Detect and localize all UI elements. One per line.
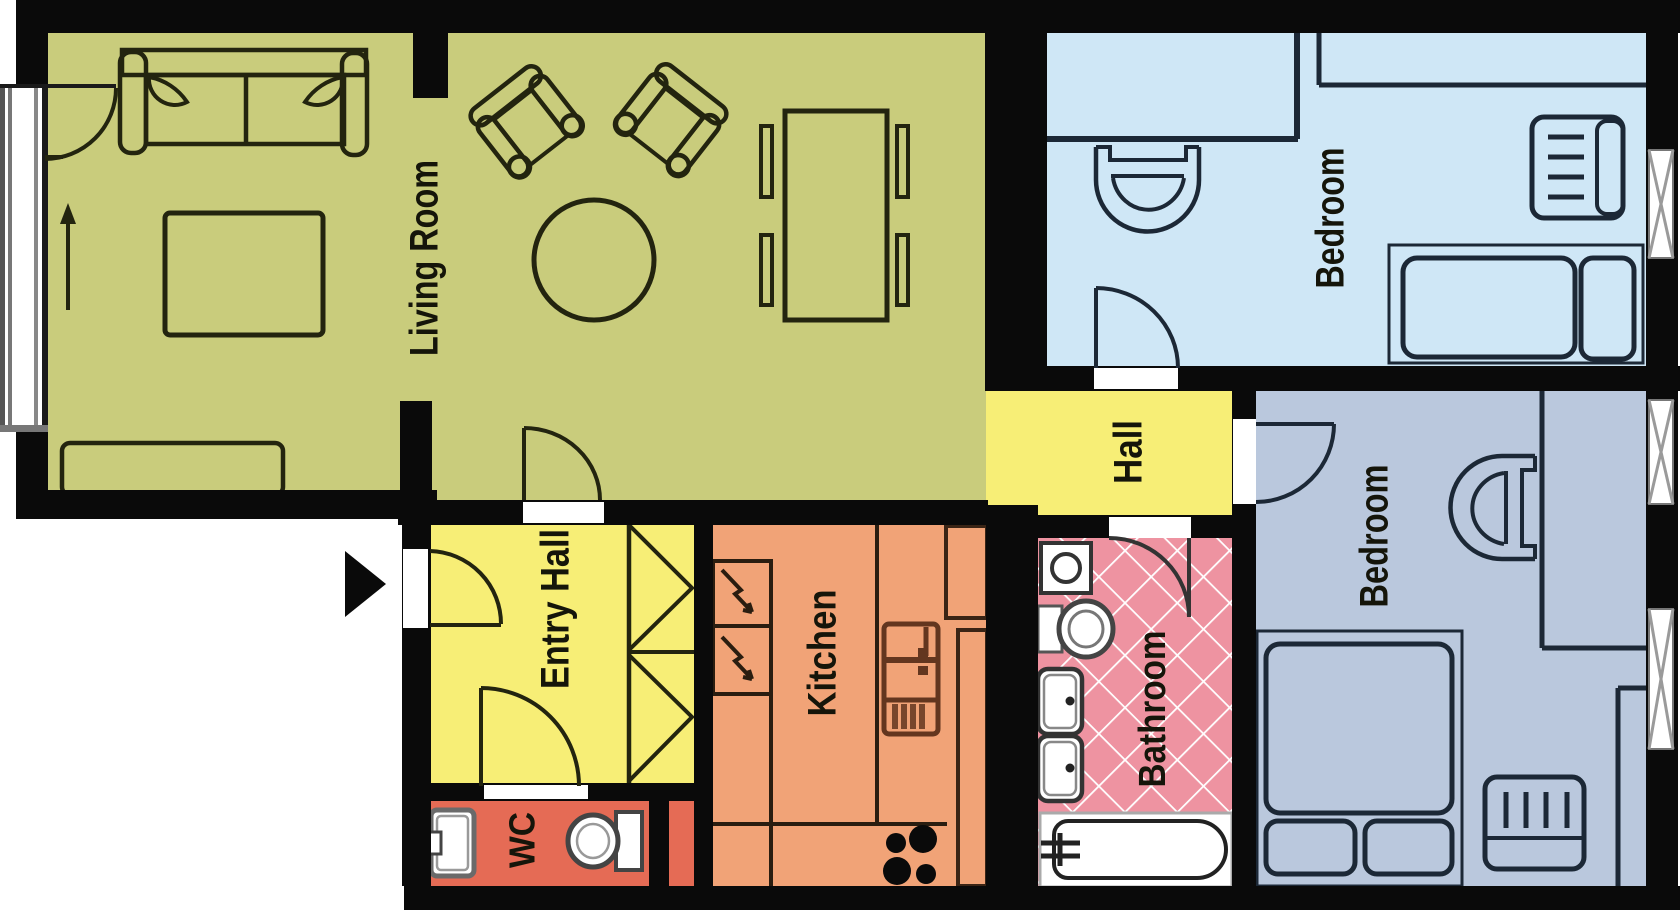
- svg-text:Living Room: Living Room: [403, 160, 447, 356]
- svg-text:Bedroom: Bedroom: [1353, 465, 1397, 608]
- svg-text:WC: WC: [502, 812, 543, 868]
- svg-text:Bathroom: Bathroom: [1132, 631, 1174, 788]
- svg-text:Bedroom: Bedroom: [1309, 148, 1353, 289]
- svg-text:Entry Hall: Entry Hall: [534, 529, 578, 689]
- svg-text:Hall: Hall: [1107, 420, 1151, 484]
- svg-text:Kitchen: Kitchen: [801, 590, 845, 717]
